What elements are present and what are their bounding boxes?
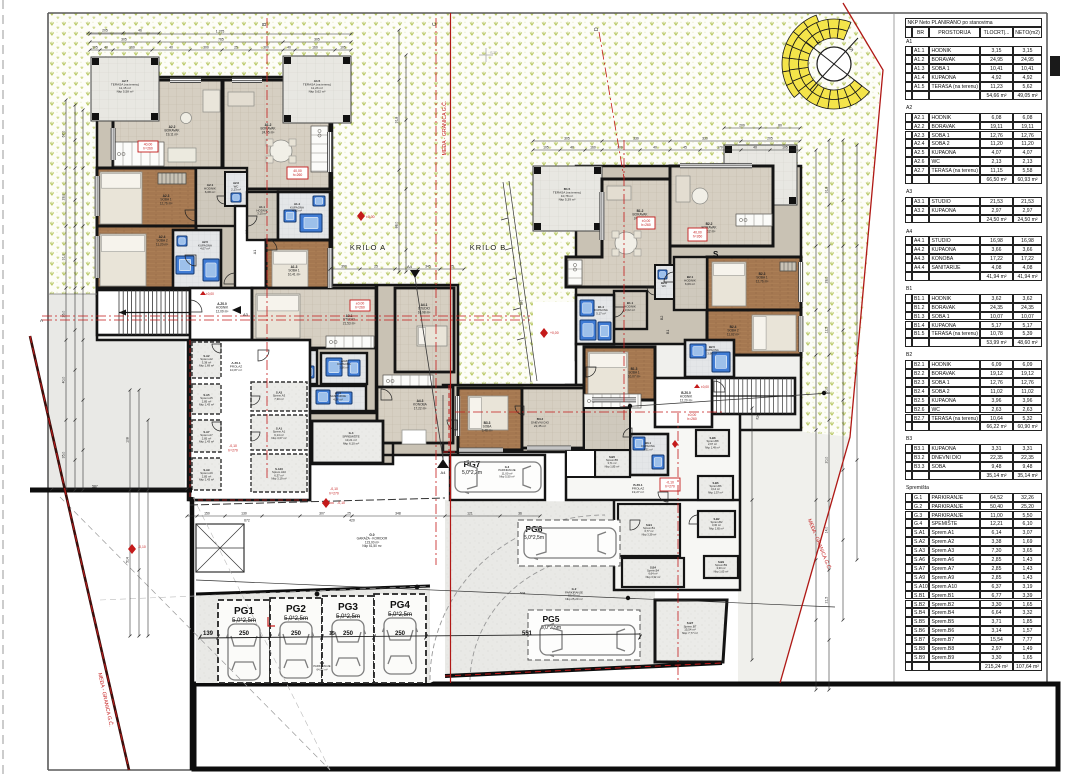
svg-text:5,0*2,5m: 5,0*2,5m (232, 618, 256, 624)
svg-text:A4: A4 (407, 264, 413, 269)
svg-text:108: 108 (126, 437, 130, 443)
svg-text:5,0*2,5m: 5,0*2,5m (284, 616, 308, 622)
svg-text:MEĐA - GRANICA G.Č.: MEĐA - GRANICA G.Č. (441, 101, 448, 156)
svg-text:514: 514 (126, 557, 130, 563)
svg-text:A1: A1 (253, 250, 257, 254)
svg-text:5,0*2,5m: 5,0*2,5m (388, 612, 412, 618)
svg-text:28,0: 28,0 (62, 194, 66, 201)
svg-text:40: 40 (287, 46, 291, 50)
svg-text:307: 307 (319, 512, 325, 516)
svg-text:551: 551 (522, 631, 533, 637)
svg-text:170: 170 (717, 146, 723, 150)
svg-text:h=270: h=270 (665, 485, 675, 489)
svg-text:D: D (594, 27, 600, 31)
svg-text:20,0: 20,0 (825, 457, 829, 464)
svg-text:390: 390 (341, 265, 347, 269)
svg-text:KRILO B: KRILO B (470, 243, 507, 252)
svg-text:C: C (432, 22, 438, 26)
svg-text:35: 35 (329, 631, 335, 637)
svg-text:h=260: h=260 (143, 147, 153, 151)
svg-text:PG4: PG4 (390, 600, 410, 611)
svg-text:31,8: 31,8 (825, 187, 829, 194)
svg-text:28,0: 28,0 (825, 277, 829, 284)
svg-text:67,0: 67,0 (62, 131, 66, 138)
svg-text:h=260: h=260 (687, 417, 697, 421)
svg-text:46: 46 (138, 29, 142, 33)
svg-text:±0,00: ±0,00 (206, 292, 214, 296)
svg-text:504: 504 (520, 591, 525, 595)
svg-text:250: 250 (291, 631, 302, 637)
svg-text:40: 40 (570, 146, 574, 150)
svg-text:35,0: 35,0 (62, 452, 66, 459)
svg-text:420: 420 (349, 519, 355, 523)
svg-text:31,8: 31,8 (395, 117, 399, 124)
svg-text:330: 330 (702, 137, 708, 141)
svg-text:672: 672 (244, 519, 250, 523)
svg-text:PG5: PG5 (542, 614, 559, 624)
svg-text:-0,10: -0,10 (337, 501, 345, 505)
svg-text:305: 305 (564, 137, 570, 141)
svg-text:PG1: PG1 (234, 606, 254, 617)
svg-text:345: 345 (425, 265, 431, 269)
svg-text:1.375: 1.375 (216, 30, 225, 34)
svg-text:h=260: h=260 (355, 306, 365, 310)
svg-text:±0,00: ±0,00 (366, 215, 375, 219)
svg-text:-0,10: -0,10 (330, 487, 338, 491)
svg-text:A.Z0.1PROLAZ10,87 m²: A.Z0.1PROLAZ10,87 m² (230, 361, 242, 372)
svg-text:305: 305 (314, 38, 320, 42)
svg-text:105: 105 (543, 146, 549, 150)
svg-text:B2: B2 (660, 316, 664, 320)
svg-text:200: 200 (739, 124, 745, 128)
svg-text:5,0*2,5m: 5,0*2,5m (524, 535, 544, 541)
svg-text:-0,10: -0,10 (229, 444, 237, 448)
svg-text:205: 205 (767, 137, 773, 141)
svg-text:45: 45 (683, 146, 687, 150)
svg-text:25: 25 (234, 46, 238, 50)
svg-text:14,0: 14,0 (825, 527, 829, 534)
svg-text:+0,00: +0,00 (550, 331, 559, 335)
svg-text:SJT.: SJT. (490, 50, 498, 55)
svg-text:130: 130 (241, 512, 247, 516)
svg-text:±0,00: ±0,00 (701, 385, 709, 389)
svg-text:S: S (713, 250, 719, 259)
svg-text:25: 25 (374, 265, 378, 269)
svg-text:139: 139 (203, 631, 214, 637)
svg-text:h=270: h=270 (228, 449, 238, 453)
svg-text:348: 348 (395, 512, 401, 516)
svg-text:250: 250 (239, 631, 250, 637)
svg-text:587: 587 (92, 485, 98, 489)
svg-text:250: 250 (343, 631, 354, 637)
svg-text:5,0*2,2m: 5,0*2,2m (462, 470, 482, 476)
svg-text:150: 150 (204, 512, 210, 516)
svg-text:B1: B1 (666, 330, 670, 334)
svg-text:40: 40 (653, 146, 657, 150)
svg-text:88,0: 88,0 (395, 222, 399, 229)
svg-text:h=260: h=260 (693, 235, 703, 239)
svg-text:105: 105 (92, 46, 98, 50)
svg-text:A: A (40, 318, 43, 323)
svg-text:5,0*2,5m: 5,0*2,5m (336, 614, 360, 620)
svg-text:300: 300 (203, 46, 209, 50)
svg-text:765: 765 (218, 38, 224, 42)
svg-text:36: 36 (518, 512, 522, 516)
svg-text:KRILO A: KRILO A (350, 243, 386, 252)
svg-text:40: 40 (169, 46, 173, 50)
svg-text:250: 250 (395, 631, 406, 637)
svg-text:PG2: PG2 (286, 604, 306, 615)
svg-text:-0,10: -0,10 (138, 545, 146, 549)
svg-text:300: 300 (263, 46, 269, 50)
svg-text:205: 205 (102, 29, 108, 33)
svg-text:200: 200 (617, 146, 623, 150)
svg-text:160: 160 (590, 146, 596, 150)
svg-text:h=260: h=260 (641, 223, 651, 227)
svg-text:40: 40 (104, 46, 108, 50)
svg-text:25: 25 (347, 512, 351, 516)
svg-text:PG7: PG7 (463, 459, 480, 469)
svg-text:B.Z0.1PROLAZ19,27 m²: B.Z0.1PROLAZ19,27 m² (632, 483, 644, 494)
svg-text:160: 160 (312, 46, 318, 50)
svg-text:105: 105 (782, 146, 788, 150)
svg-text:PG3: PG3 (338, 602, 358, 613)
svg-text:40,0: 40,0 (62, 377, 66, 384)
svg-text:21,5: 21,5 (825, 597, 829, 604)
svg-text:12,5: 12,5 (825, 327, 829, 334)
svg-text:105: 105 (340, 46, 346, 50)
svg-text:A4: A4 (441, 470, 447, 475)
svg-text:305: 305 (121, 38, 127, 42)
svg-text:A3: A3 (243, 312, 249, 317)
svg-text:160: 160 (129, 46, 135, 50)
svg-text:40: 40 (753, 146, 757, 150)
svg-text:121: 121 (467, 512, 473, 516)
svg-text:h=270: h=270 (329, 492, 339, 496)
svg-text:31,0: 31,0 (62, 254, 66, 261)
svg-text:h=260: h=260 (293, 173, 303, 177)
svg-text:80: 80 (778, 124, 782, 128)
svg-text:330: 330 (633, 137, 639, 141)
